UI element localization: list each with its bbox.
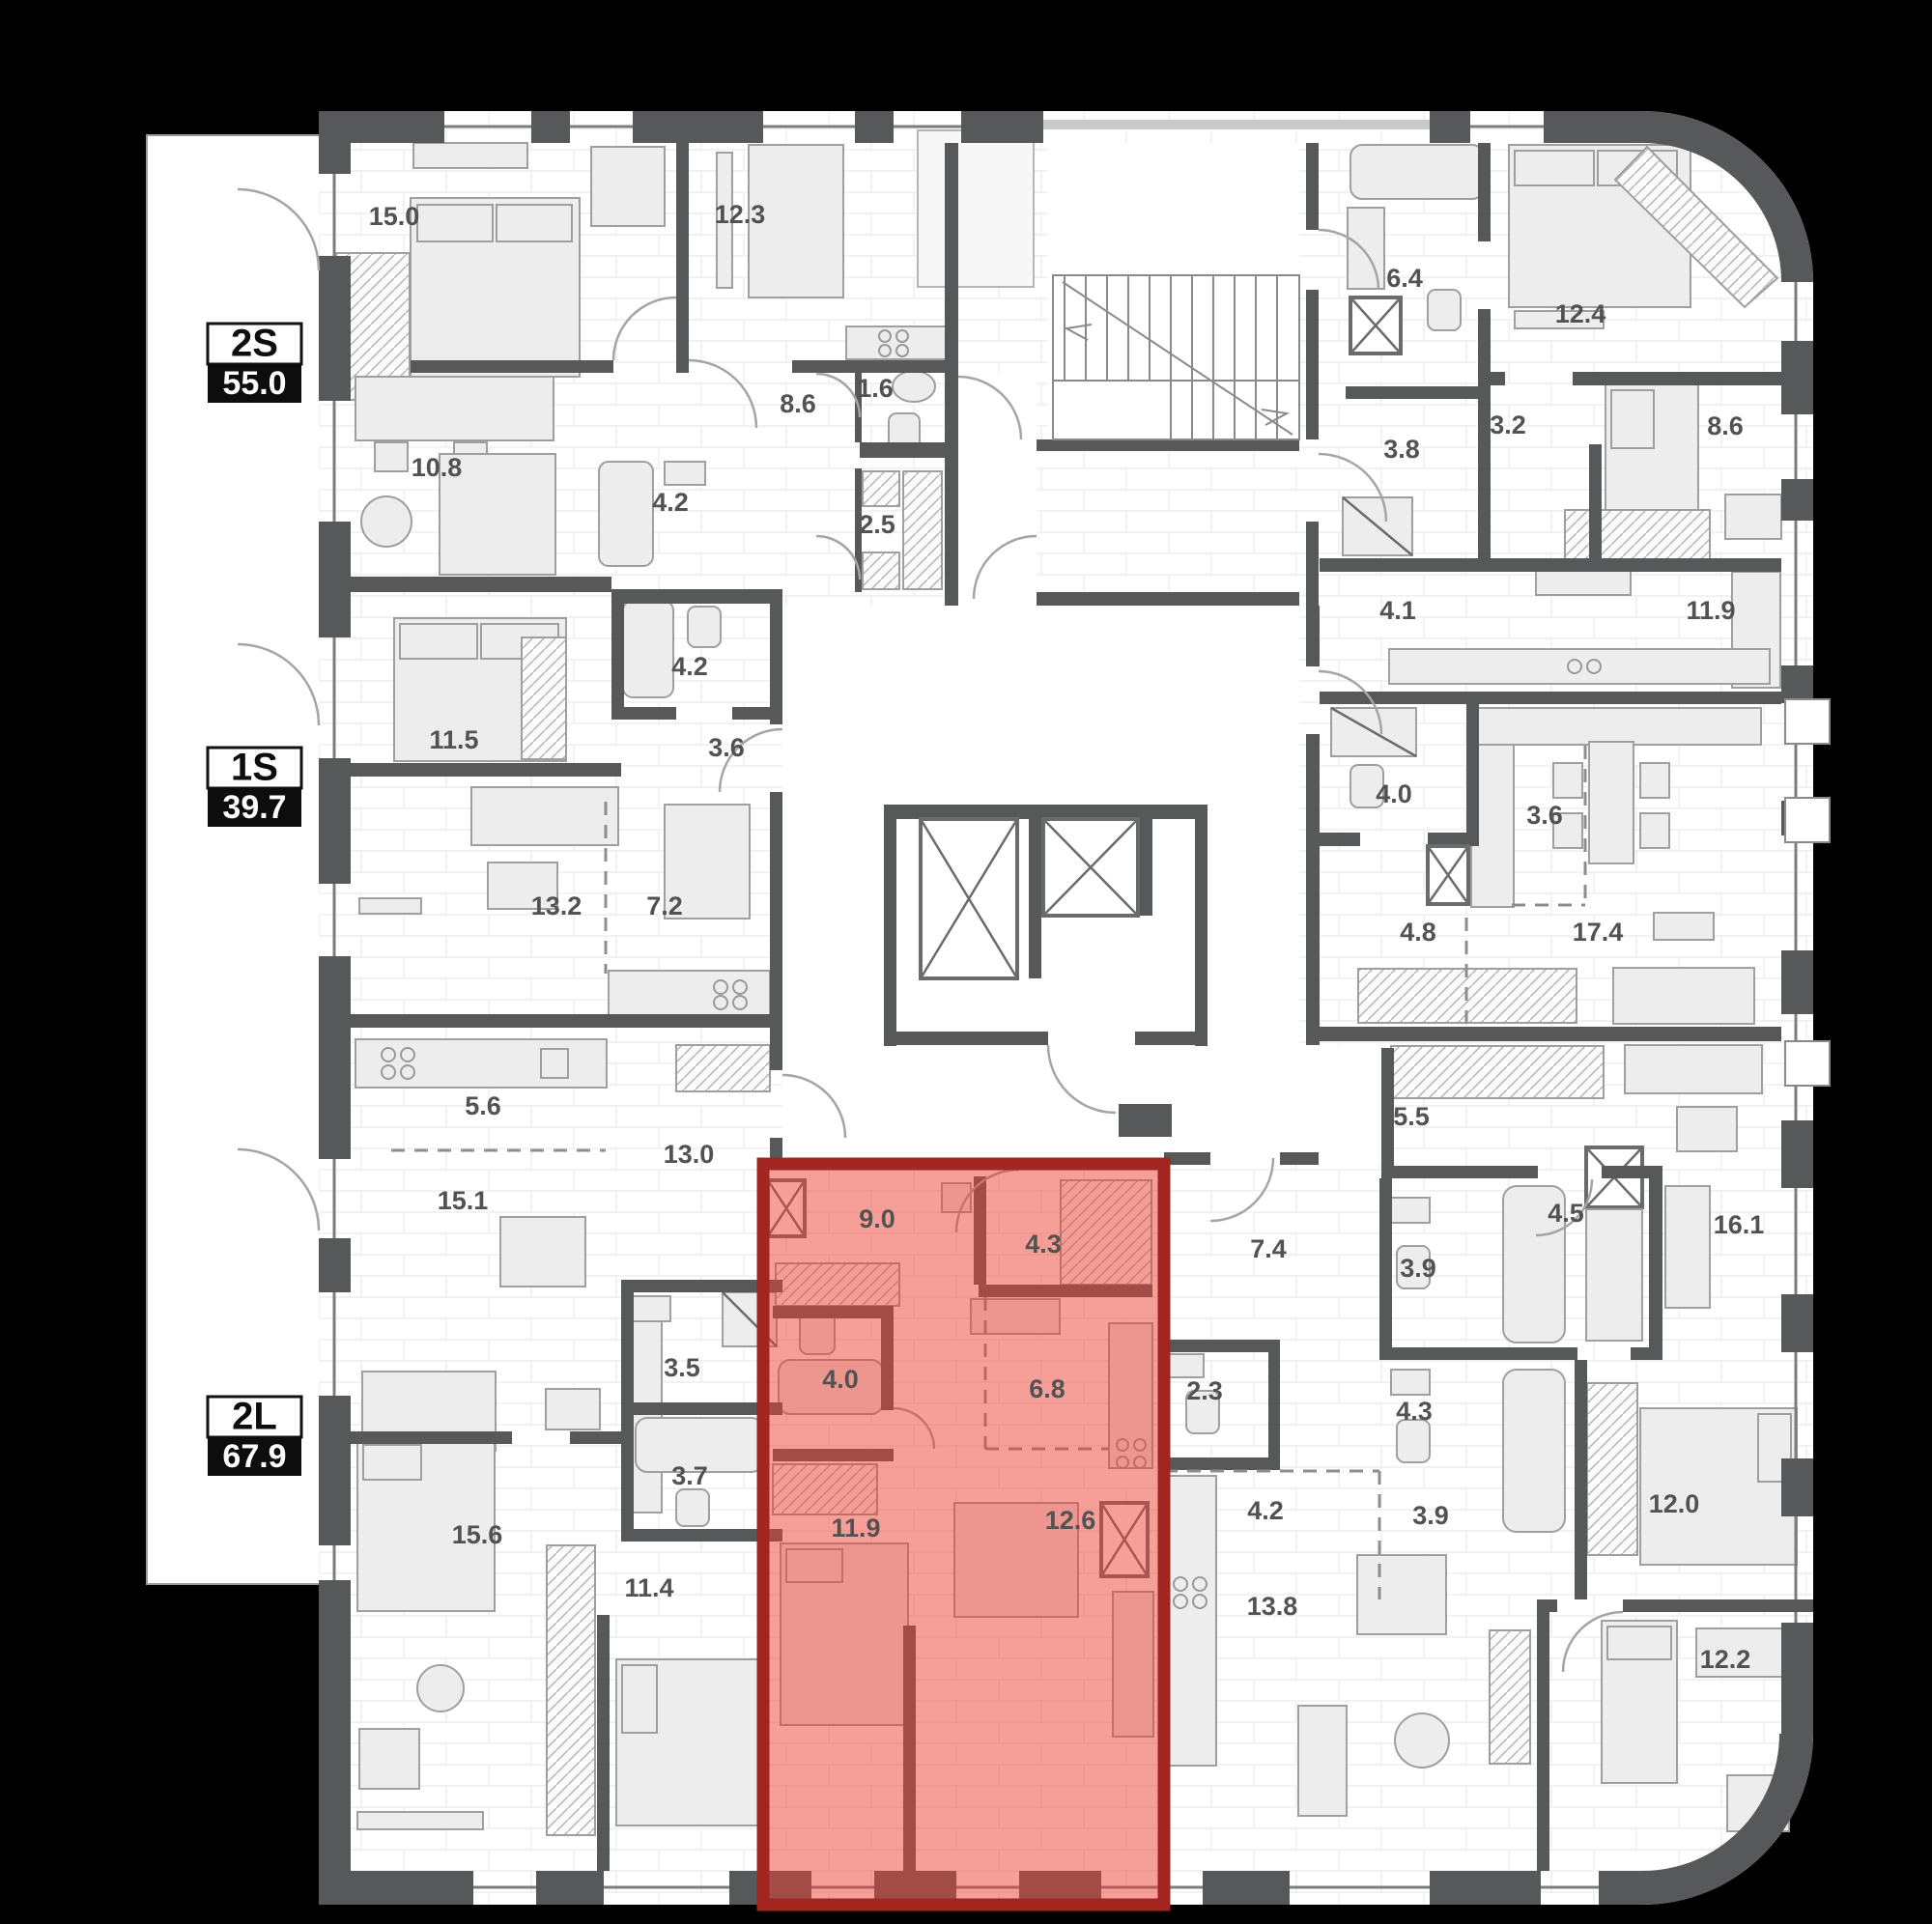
room-area-label: 11.9	[1686, 596, 1735, 625]
room-area-label: 3.8	[1383, 435, 1420, 464]
unit-label-1S: 1S39.7	[208, 747, 301, 827]
room-area-label: 15.6	[452, 1520, 503, 1549]
svg-text:55.0: 55.0	[222, 365, 286, 402]
room-area-label: 3.6	[708, 733, 745, 762]
room-area-label: 4.2	[1247, 1496, 1284, 1525]
room-area-label: 3.9	[1412, 1501, 1449, 1530]
room-area-label: 4.8	[1400, 918, 1436, 947]
room-area-label: 12.3	[715, 200, 766, 229]
svg-text:39.7: 39.7	[222, 789, 286, 826]
highlighted-apartment-overlay[interactable]	[763, 1164, 1164, 1905]
room-area-label: 4.2	[652, 488, 689, 517]
floor-plan-svg: 15.012.38.61.610.84.22.511.54.23.613.27.…	[0, 0, 1932, 1924]
room-area-label: 4.3	[1396, 1397, 1433, 1426]
room-area-label: 5.6	[465, 1091, 501, 1120]
room-area-label: 5.5	[1393, 1102, 1430, 1131]
room-area-label: 7.2	[646, 891, 683, 920]
room-area-label: 3.6	[1526, 801, 1563, 830]
room-area-label: 4.1	[1379, 596, 1416, 625]
room-area-label: 15.1	[438, 1186, 489, 1215]
room-area-label: 3.9	[1400, 1254, 1436, 1283]
room-area-label: 4.0	[1376, 779, 1412, 808]
room-area-label: 6.8	[1029, 1374, 1065, 1403]
room-area-label: 8.6	[1707, 411, 1744, 440]
room-area-label: 7.4	[1250, 1234, 1287, 1263]
room-area-label: 12.2	[1700, 1645, 1751, 1674]
unit-label-2S: 2S55.0	[208, 323, 301, 403]
room-area-label: 17.4	[1573, 918, 1624, 947]
room-area-label: 12.4	[1555, 299, 1606, 328]
svg-text:2S: 2S	[231, 323, 278, 365]
room-area-label: 15.0	[369, 202, 420, 231]
room-area-label: 4.2	[671, 652, 708, 681]
unit-label-2L: 2L67.9	[208, 1396, 301, 1476]
room-area-label: 12.0	[1649, 1489, 1700, 1518]
room-area-label: 11.4	[624, 1573, 673, 1602]
room-area-label: 6.4	[1386, 264, 1423, 293]
room-area-label: 13.8	[1247, 1592, 1298, 1621]
room-area-label: 4.0	[822, 1365, 859, 1394]
room-area-label: 16.1	[1714, 1210, 1765, 1239]
room-area-label: 2.3	[1186, 1376, 1223, 1405]
room-area-label: 2.5	[859, 510, 895, 539]
room-area-label: 11.9	[831, 1514, 880, 1542]
room-area-label: 4.3	[1025, 1230, 1062, 1259]
room-area-label: 8.6	[780, 389, 816, 418]
floor-plan-screenshot: 15.012.38.61.610.84.22.511.54.23.613.27.…	[0, 0, 1932, 1924]
room-area-label: 12.6	[1045, 1506, 1096, 1535]
svg-text:2L: 2L	[232, 1396, 277, 1438]
room-area-label: 9.0	[859, 1204, 895, 1233]
svg-text:67.9: 67.9	[222, 1438, 286, 1475]
room-area-label: 1.6	[857, 374, 894, 403]
room-area-label: 4.5	[1548, 1199, 1584, 1228]
room-area-label: 3.7	[671, 1461, 708, 1490]
room-area-label: 13.0	[664, 1140, 715, 1169]
room-area-label: 3.5	[664, 1353, 700, 1382]
room-area-label: 3.2	[1490, 410, 1526, 439]
room-area-label: 11.5	[429, 725, 478, 754]
room-area-label: 13.2	[531, 891, 582, 920]
room-area-label: 10.8	[412, 453, 463, 482]
svg-text:1S: 1S	[231, 747, 278, 789]
